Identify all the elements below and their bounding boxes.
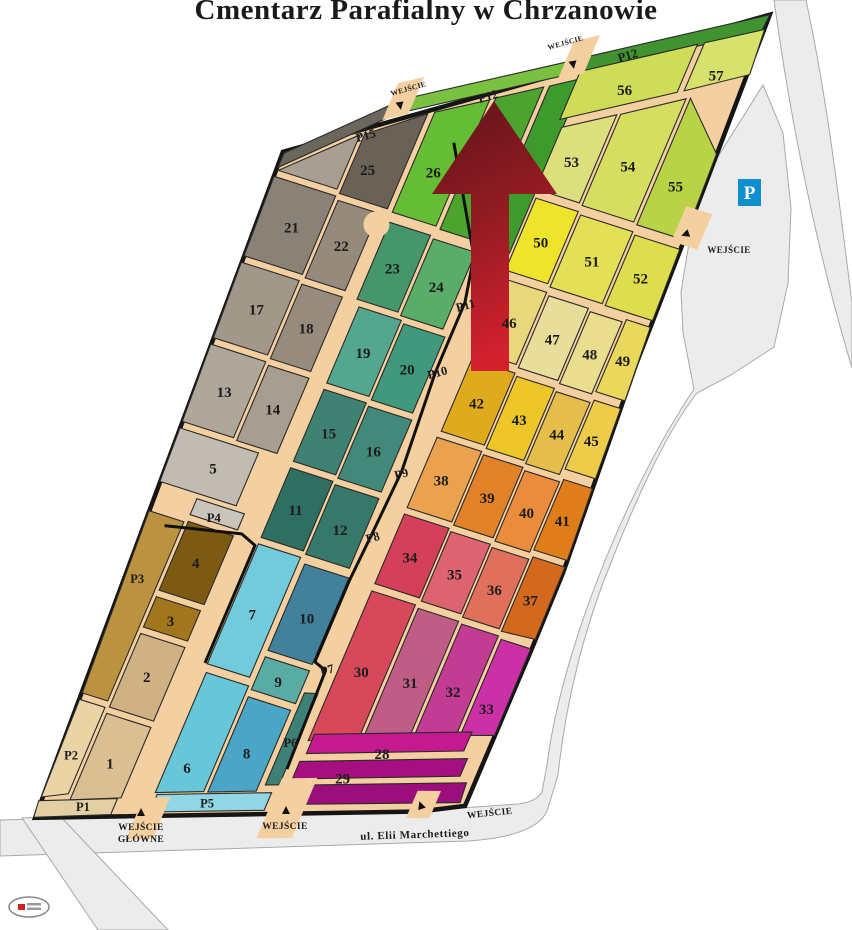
roundabout (363, 211, 389, 237)
gate-label: P6 (283, 736, 297, 750)
section-label: 37 (523, 594, 539, 610)
section-label: 36 (487, 583, 503, 599)
section-label: 33 (479, 702, 494, 718)
section-label: 14 (265, 402, 281, 418)
section-label: 6 (183, 761, 191, 777)
section-label: 13 (217, 385, 232, 401)
section-label: 43 (512, 413, 527, 429)
section-label: 5 (209, 461, 217, 477)
section-label: 24 (429, 280, 445, 296)
section-label: 3 (167, 614, 175, 630)
section-label: 7 (249, 608, 257, 624)
map-canvas: P2P1P31234P4513141718212225P1567P58910P6… (0, 0, 852, 930)
section-label: 57 (709, 69, 725, 85)
section-label: 22 (334, 239, 349, 255)
entrance-label: GŁÓWNE (118, 833, 164, 845)
section-label: 20 (400, 363, 415, 379)
section-label: 50 (533, 235, 548, 251)
section-label: 2 (143, 670, 151, 686)
section-label: 32 (446, 685, 461, 701)
section-label: 15 (321, 427, 336, 443)
entrance-label: WEJŚCIE (262, 820, 308, 832)
section-label: 16 (366, 444, 382, 460)
section-label: 4 (192, 556, 200, 572)
section-label: 31 (403, 676, 418, 692)
section-label: 56 (617, 83, 633, 99)
entrance-label: WEJŚCIE (707, 245, 750, 255)
section-label: 49 (615, 354, 630, 370)
section-label: 19 (356, 346, 371, 362)
section-label: 51 (584, 254, 599, 270)
section-label: 46 (502, 316, 518, 332)
gate-label: P2 (64, 749, 78, 763)
section-label: 38 (434, 473, 449, 489)
section-label: 34 (402, 551, 418, 567)
parking-icon-label: P (744, 183, 756, 204)
section-label: 48 (582, 347, 597, 363)
section-label: 47 (545, 333, 561, 349)
section-label: 55 (668, 179, 683, 195)
section-label: 39 (480, 491, 495, 507)
section-label: 28 (374, 747, 389, 763)
section-label: 53 (564, 155, 579, 171)
section-label: 54 (620, 160, 636, 176)
section-label: 29 (335, 772, 350, 788)
section-label: 23 (385, 262, 400, 278)
section-label: 25 (360, 163, 375, 179)
gate-label: P1 (76, 800, 90, 814)
publisher-logo (9, 897, 49, 917)
section-label: 21 (284, 220, 299, 236)
section-label: 40 (519, 506, 534, 522)
gate-label: P5 (200, 797, 214, 811)
section-label: 8 (243, 747, 251, 763)
section-label: 10 (299, 611, 314, 627)
gate-label: P4 (207, 511, 222, 525)
cemetery-map: P2P1P31234P4513141718212225P1567P58910P6… (0, 0, 852, 930)
section-label: 42 (469, 397, 484, 413)
section-label: 26 (426, 166, 442, 182)
section-label: 18 (299, 321, 314, 337)
section-label: 45 (584, 434, 599, 450)
section-label: 1 (106, 757, 114, 773)
section-label: 12 (333, 523, 348, 539)
section-label: 9 (274, 675, 282, 691)
section-label: 30 (354, 665, 369, 681)
entrance-label: WEJŚCIE (118, 821, 164, 833)
section-label: 17 (249, 303, 265, 319)
section-label: 44 (549, 428, 565, 444)
map-title: Cmentarz Parafialny w Chrzanowie (0, 0, 852, 27)
section-label: 35 (447, 568, 462, 584)
section-label: 11 (288, 503, 302, 519)
section-label: 52 (633, 272, 648, 288)
gate-label: P3 (130, 572, 144, 586)
section-label: 41 (555, 514, 570, 530)
